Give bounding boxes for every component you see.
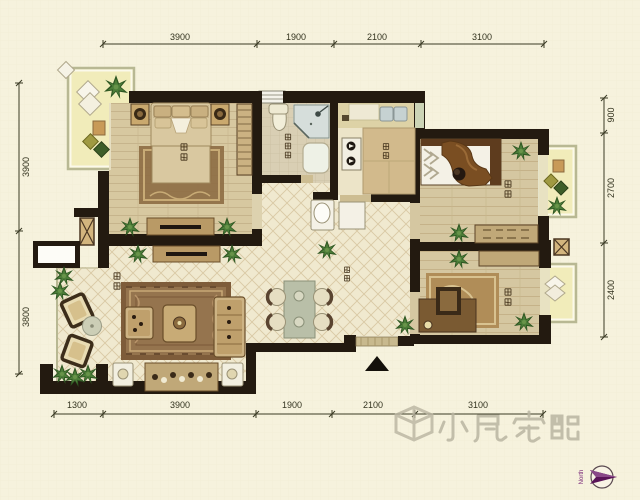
svg-text:1900: 1900 (282, 400, 302, 410)
svg-text:3100: 3100 (472, 32, 492, 42)
svg-text:1300: 1300 (67, 400, 87, 410)
svg-text:3900: 3900 (170, 32, 190, 42)
svg-text:3800: 3800 (21, 307, 31, 327)
svg-text:2100: 2100 (367, 32, 387, 42)
svg-text:3100: 3100 (468, 400, 488, 410)
svg-text:3900: 3900 (21, 157, 31, 177)
svg-text:North: North (579, 470, 585, 485)
svg-text:1900: 1900 (286, 32, 306, 42)
svg-text:2100: 2100 (363, 400, 383, 410)
svg-text:2400: 2400 (606, 280, 616, 300)
svg-text:900: 900 (606, 107, 616, 122)
svg-text:3900: 3900 (170, 400, 190, 410)
svg-text:2700: 2700 (606, 178, 616, 198)
